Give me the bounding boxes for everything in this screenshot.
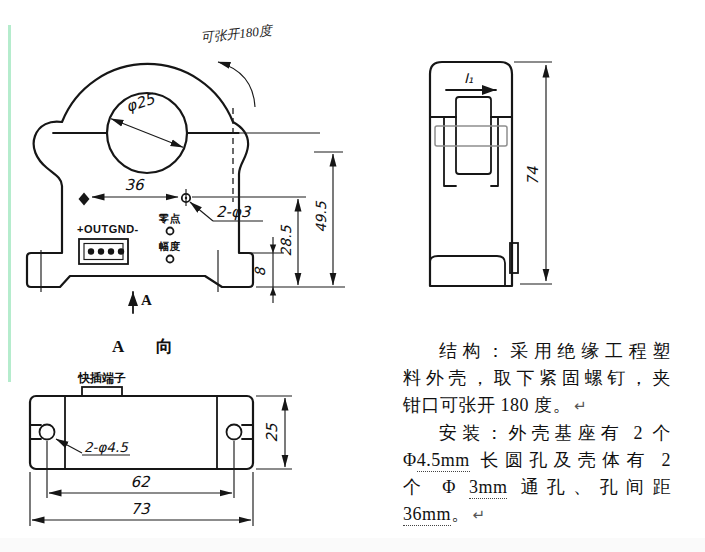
holes-leader-arrow: [190, 202, 213, 221]
notes-text: Φ: [403, 450, 417, 470]
right-slot-lines: [242, 425, 253, 439]
open-angle-arc-arrow: [218, 62, 255, 107]
terminal-tab: [82, 387, 122, 396]
notes-panel: 结构：采用绝缘工程塑 料外壳，取下紧固螺钉，夹 钳口可张开 180 度。↵ 安装…: [403, 338, 671, 529]
notes-underlined-text: 36mm: [403, 504, 451, 526]
dim-8-label: 8: [252, 266, 268, 276]
notes-text: 长圆孔及壳体有 2: [470, 450, 671, 470]
notes-text: 通孔、孔间距: [507, 477, 671, 497]
bottom-view-title-letter: A: [112, 337, 125, 356]
connector-pins: [88, 248, 124, 254]
notes-text: 安装：外壳基座有 2 个: [439, 423, 671, 443]
paragraph-mark: ↵: [571, 398, 587, 414]
notes-text: 。: [451, 504, 470, 524]
notes-line: 料外壳，取下紧固螺钉，夹: [403, 365, 671, 392]
notes-underlined-text: 4.5mm: [417, 450, 470, 472]
dim-8-arrow-bottom: [270, 287, 276, 296]
side-base-line: [430, 256, 505, 286]
dim-73-label: 73: [130, 500, 151, 518]
notes-line: 钳口可张开 180 度。↵: [403, 392, 671, 420]
holes-label: 2-φ3: [216, 203, 252, 221]
foot-tick-lines: [41, 250, 218, 292]
front-view: φ25 可张开180度 36 2-φ3 零点 幅度 +OUTGND- 8: [27, 22, 345, 313]
base-inner-lines: [65, 396, 217, 469]
side-clamp-column: [456, 97, 491, 174]
right-slot-hole: [227, 425, 242, 440]
left-accent-line: [8, 25, 11, 382]
slots-label: 2-φ4.5: [84, 439, 129, 455]
side-view: I₁ 74: [430, 62, 552, 286]
slots-leader-arrow: [56, 439, 82, 453]
footer-strip: [0, 538, 705, 552]
side-label-recess: [435, 126, 507, 146]
dim-25-label: 25: [263, 422, 281, 443]
notes-underlined-text: 3mm: [469, 477, 508, 499]
engineering-drawing-page: φ25 可张开180度 36 2-φ3 零点 幅度 +OUTGND- 8: [0, 0, 705, 552]
dim-8-arrow-top: [270, 245, 276, 254]
notes-line: Φ4.5mm 长圆孔及壳体有 2: [403, 447, 671, 474]
dim-49-5-label: 49.5: [313, 200, 329, 232]
left-mount-hole: [79, 193, 90, 206]
notes-line: 安装：外壳基座有 2 个: [403, 420, 671, 447]
notes-text: 料外壳，取下紧固螺钉，夹: [403, 368, 671, 388]
side-step-lines: [444, 117, 498, 186]
notes-text: 结构：采用绝缘工程塑: [439, 341, 671, 361]
left-slot-hole: [40, 425, 55, 440]
notes-text: 个 Φ: [403, 477, 469, 497]
terminal-label: 快插端子: [77, 371, 126, 385]
notes-text: 钳口可张开 180 度。: [403, 395, 571, 415]
zero-adjust-hole: [167, 228, 174, 235]
amplitude-adjust-label: 幅度: [158, 240, 181, 252]
dim-28-5-label: 28.5: [278, 224, 294, 256]
diameter-arrow: [111, 119, 183, 148]
dim-74-label: 74: [524, 166, 542, 186]
connector-pinout-label: +OUTGND-: [77, 223, 139, 235]
paragraph-mark: ↵: [470, 507, 486, 523]
notes-line: 结构：采用绝缘工程塑: [403, 338, 671, 365]
bottom-view-a: A 向 快插端子 2-φ4.5 25 62 73: [30, 337, 292, 526]
base-outline: [30, 396, 253, 469]
notes-line: 36mm。↵: [403, 501, 671, 529]
notes-line: 个 Φ 3mm 通孔、孔间距: [403, 474, 671, 501]
open-angle-note: 可张开180度: [200, 22, 275, 45]
current-direction-label: I₁: [464, 70, 473, 86]
bottom-view-title-word: 向: [156, 337, 173, 356]
dim-36-label: 36: [124, 176, 145, 194]
zero-adjust-label: 零点: [158, 212, 181, 225]
amplitude-adjust-hole: [167, 256, 174, 263]
dim-62-label: 62: [130, 473, 151, 491]
view-a-arrow-label: A: [141, 292, 152, 308]
